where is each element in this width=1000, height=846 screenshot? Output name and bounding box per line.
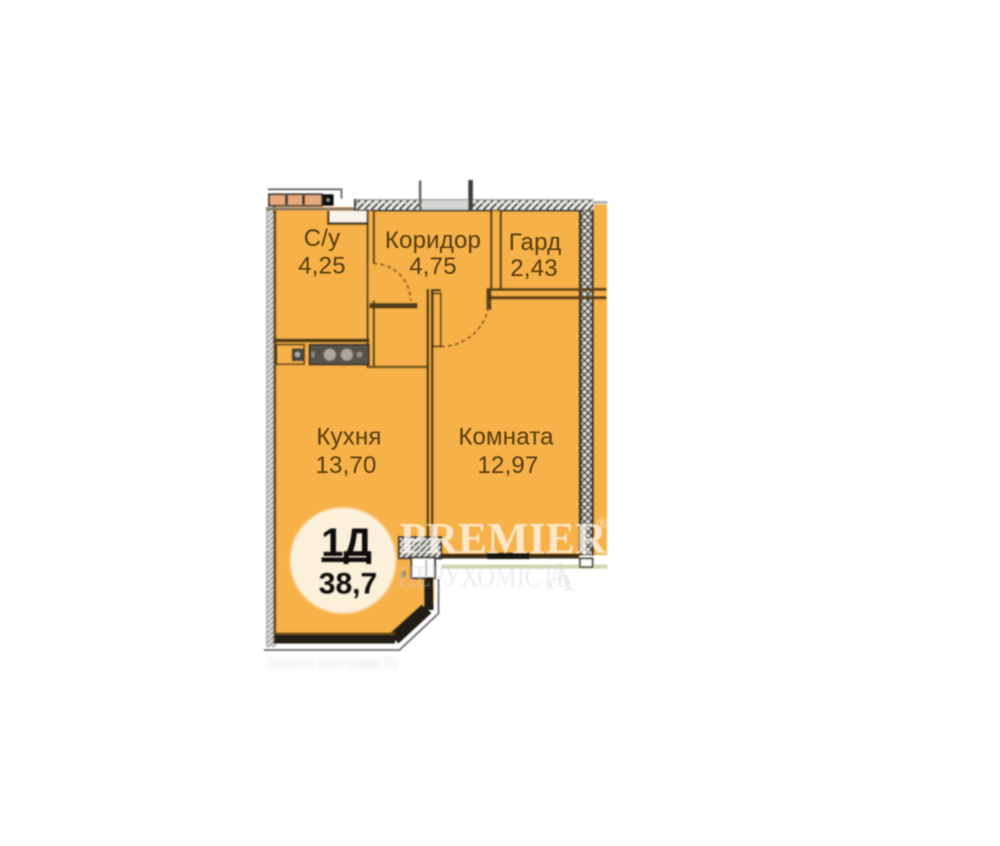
svg-text:4,25: 4,25 bbox=[298, 253, 346, 280]
svg-text:4,75: 4,75 bbox=[409, 253, 457, 280]
svg-text:2,43: 2,43 bbox=[510, 255, 558, 282]
svg-text:13,70: 13,70 bbox=[315, 452, 376, 479]
svg-text:А: А bbox=[545, 554, 576, 600]
svg-text:12,97: 12,97 bbox=[477, 452, 538, 479]
svg-text:Комната: Комната bbox=[458, 424, 554, 451]
svg-text:Кухня: Кухня bbox=[316, 424, 381, 451]
svg-text:38,7: 38,7 bbox=[319, 568, 377, 601]
svg-text:Коридор: Коридор bbox=[385, 227, 481, 254]
svg-text:®: ® bbox=[597, 516, 608, 532]
svg-text:С/у: С/у bbox=[304, 225, 341, 252]
svg-text:Гард: Гард bbox=[509, 229, 562, 256]
svg-text:PREMIER: PREMIER bbox=[400, 514, 608, 563]
svg-text:ПРЕМ'ЄР НЕРУХОМІСТЬ: ПРЕМ'ЄР НЕРУХОМІСТЬ bbox=[268, 656, 398, 673]
